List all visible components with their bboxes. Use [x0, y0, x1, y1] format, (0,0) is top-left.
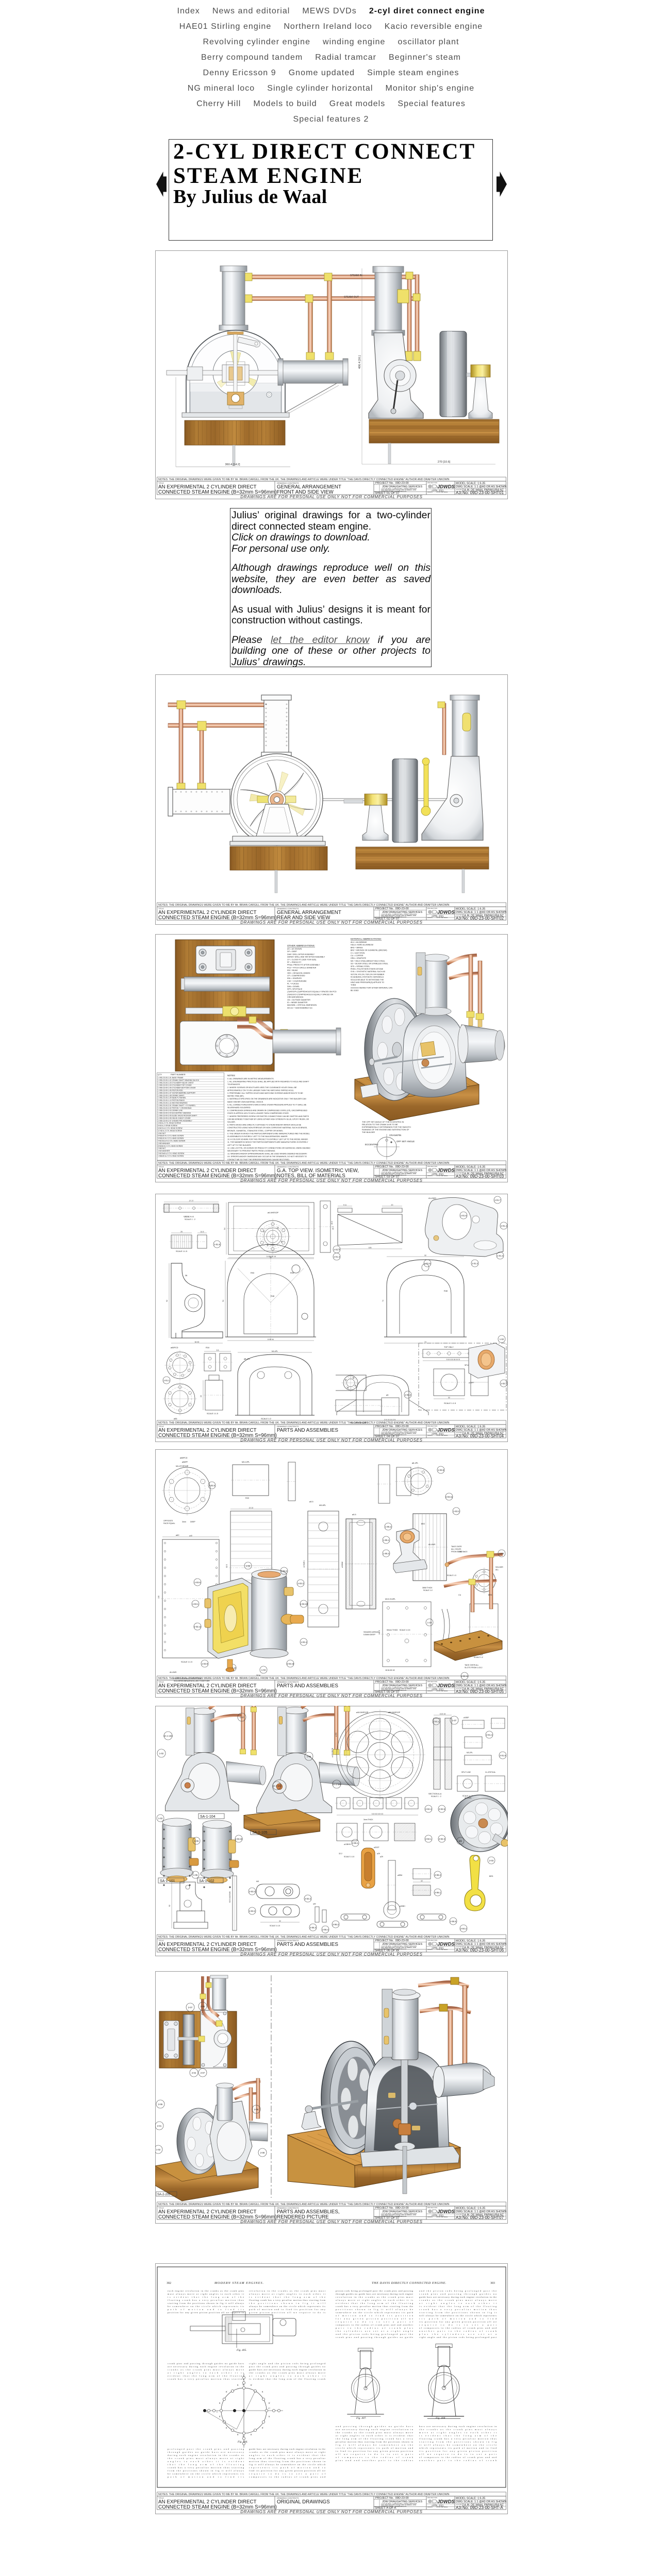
svg-text:⌀40: ⌀40 [189, 1535, 192, 1537]
svg-text:(7)HESOP=(7)APPEDHOLES EQUALLY: (7)HESOP=(7)APPEDHOLES EQUALLY SPACED ON… [287, 991, 337, 993]
svg-text:1-02: 1-02 [246, 1565, 251, 1567]
svg-text:2-03.4: 2-03.4 [249, 1890, 256, 1893]
svg-text:DRAWN: DRAWN [427, 2216, 433, 2218]
svg-text:VETON, NYLON, TEFLON OR RUBBER: VETON, NYLON, TEFLON OR RUBBER [351, 973, 385, 975]
svg-text:BRZ = BRONZE OR GUNMETAL (BRZ/: BRZ = BRONZE OR GUNMETAL (BRZ/GM) [351, 950, 387, 952]
svg-text:DRAWN: DRAWN [427, 1434, 433, 1436]
svg-text:be somewhere on the circle whi: be somewhere on the circle which represe… [168, 2472, 244, 2475]
svg-text:SOULD BE ABLE TO WITHSTAND THE: SOULD BE ABLE TO WITHSTAND THE [351, 979, 384, 981]
svg-text:22 22: 22 22 [249, 1507, 254, 1509]
svg-text:VIEW A-A: VIEW A-A [184, 1215, 194, 1218]
svg-text:1-09: 1-09 [500, 1552, 504, 1555]
svg-text:1-05: 1-05 [193, 1874, 198, 1876]
svg-text:M3-12PL: M3-12PL [242, 1461, 250, 1463]
svg-text:1 09D-23-00-1-06 PISTON ROD: 1 09D-23-00-1-06 PISTON ROD [158, 1090, 183, 1092]
svg-text:R93: R93 [290, 1272, 294, 1274]
svg-text:SA-xxx = SUB ASSEMBLY-xxx: SA-xxx = SUB ASSEMBLY-xxx [287, 1007, 312, 1009]
svg-text:PROJECTION: PROJECTION [427, 1165, 437, 1167]
svg-text:ALU/MS: ALU/MS [428, 1197, 436, 1199]
svg-text:represents its path of motion: represents its path of motion and to [249, 2466, 325, 2469]
svg-text:2-04: 2-04 [192, 2072, 196, 2074]
svg-text:CONSTRUCTED USING NON-FERROUS: CONSTRUCTED USING NON-FERROUS OR NON COR… [227, 1127, 307, 1129]
svg-text:DEEP: DEEP [190, 1521, 195, 1523]
svg-text:ORIGINAL DRAWINGS: ORIGINAL DRAWINGS [277, 2499, 330, 2505]
svg-text:XX. ERRORS AND/OR OMISSIONS MA: XX. ERRORS AND/OR OMISSIONS MAY OCCUR IN… [227, 1156, 307, 1158]
svg-text:2-02.4: 2-02.4 [425, 1808, 432, 1810]
svg-text:SCALE 1:1.5: SCALE 1:1.5 [176, 1250, 187, 1252]
svg-text:360.4 [14.2]: 360.4 [14.2] [225, 463, 240, 466]
svg-text:PART NUMBER: PART NUMBER [171, 1073, 186, 1076]
svg-text:IS ASSEMBLED IS ENTIRELY LEFT: IS ASSEMBLED IS ENTIRELY LEFT TO THE BUI… [227, 1136, 288, 1138]
svg-text:64 60: 64 60 [195, 1341, 200, 1343]
svg-text:1-02: 1-02 [159, 1752, 164, 1755]
svg-text:15 8 15: 15 8 15 [440, 1713, 446, 1715]
svg-text:(7)HESOC=(7)TAPPEDHOLES EQUALL: (7)HESOC=(7)TAPPEDHOLES EQUALLY SPACED O… [287, 993, 334, 995]
svg-text:PROJECTION: PROJECTION [427, 2497, 437, 2499]
svg-text:R16: R16 [206, 1347, 209, 1349]
svg-text:SCALE 1 : 2: SCALE 1 : 2 [185, 1218, 195, 1221]
svg-text:A3: A3 [456, 1689, 461, 1694]
svg-text:ALU/MS: ALU/MS [465, 1797, 472, 1799]
svg-text:M3.5-MAX/MIN: M3.5-MAX/MIN [229, 1891, 231, 1903]
svg-text:SHADED AREAS: SHADED AREAS [363, 1631, 379, 1633]
svg-text:1-02.2: 1-02.2 [501, 1382, 507, 1385]
svg-text:⌀36: ⌀36 [271, 1244, 274, 1246]
svg-text:SS = SILVER STEEL OR STAINLE: SS = SILVER STEEL OR STAINLESS STEEL [351, 963, 388, 965]
svg-text:EXPERIMENTALLY DETERMINED FOR: EXPERIMENTALLY DETERMINED FOR THE SMOOTH [362, 1126, 411, 1128]
svg-text:TOP ONLY: TOP ONLY [444, 1346, 454, 1348]
svg-text:J.A.M. DE WAAL: J.A.M. DE WAAL [436, 1175, 448, 1177]
svg-text:PROJECT No. 09D-23-00: PROJECT No. 09D-23-00 [375, 2497, 409, 2500]
svg-text:THE BUILDER: THE BUILDER [362, 1131, 375, 1133]
svg-text:PROJECTION: PROJECTION [427, 1425, 437, 1427]
svg-text:NECESSARY TO PREVENT PARTS FRO: NECESSARY TO PREVENT PARTS FROM LOOSENIN… [227, 1150, 275, 1152]
svg-text:floating crank has a very pecu: floating crank has a very peculiar motio… [419, 2437, 496, 2440]
svg-text:SCALE 1:2: SCALE 1:2 [261, 1417, 272, 1420]
svg-text:PROJECTION: PROJECTION [427, 907, 437, 909]
svg-text:for any given piston position: for any given piston position all we [336, 2317, 413, 2320]
svg-text:NOTES: THE ORIGINAL DRAWINGS W: NOTES: THE ORIGINAL DRAWINGS WERE GIVEN … [158, 1936, 450, 1939]
svg-text:FACE EQUAL: FACE EQUAL [163, 1522, 175, 1524]
svg-text:4 M2.5x12 A-2 CYL HEAD SCREW: 4 M2.5x12 A-2 CYL HEAD SCREW [158, 1140, 186, 1142]
svg-text:PF = PRESS FIT: PF = PRESS FIT [287, 961, 302, 963]
svg-text:ALL HOLES: ALL HOLES [451, 1548, 461, 1550]
svg-text:⌀18DP: ⌀18DP [464, 1717, 469, 1719]
svg-text:PROJECT No. 09D-23-00: PROJECT No. 09D-23-00 [375, 907, 409, 910]
svg-text:NOTES: THE ORIGINAL DRAWINGS W: NOTES: THE ORIGINAL DRAWINGS WERE GIVEN … [158, 904, 450, 907]
svg-text:floating crank has a very pecu: floating crank has a very peculiar motio… [249, 2299, 326, 2301]
svg-text:1-03.4: 1-03.4 [301, 1641, 307, 1643]
svg-text:all we require to do is to set: all we require to do is to set a pair [336, 2453, 413, 2455]
svg-text:No: 09D-23-00-SHT02: No: 09D-23-00-SHT02 [462, 916, 504, 921]
svg-text:must always move at right angl: must always move at right angles to each… [168, 2293, 244, 2295]
svg-text:SA-2-205: SA-2-205 [157, 2193, 171, 2196]
svg-text:cranks as the crank pins must: cranks as the crank pins must always mov… [168, 2368, 244, 2371]
svg-text:1-02.2: 1-02.2 [405, 1394, 411, 1396]
svg-text:2 09D-23-00-1-10 PISTON RINGS: 2 09D-23-00-1-10 PISTON RINGS [158, 1099, 185, 1101]
svg-text:74: 74 [424, 1341, 426, 1343]
svg-text:of compasses to the radius of: of compasses to the radius of crank pins… [419, 2327, 497, 2329]
svg-text:⌀18-5HESOP: ⌀18-5HESOP [356, 1711, 369, 1714]
svg-text:SEAL: SEAL [256, 1674, 261, 1676]
svg-text:floating crank has a very pecu: floating crank has a very peculiar motio… [168, 2299, 244, 2301]
svg-text:1-01.6: 1-01.6 [460, 1214, 467, 1217]
svg-text:each engine revolution in the: each engine revolution in the cranks as … [168, 2290, 244, 2292]
svg-text:GRA = GRAPHITE: GRA = GRAPHITE [351, 957, 367, 959]
svg-text:1-03.13: 1-03.13 [300, 1603, 308, 1605]
svg-text:peculiar motion thus starting: peculiar motion thus starting from the p… [336, 2441, 413, 2443]
svg-text:A3: A3 [456, 2215, 461, 2220]
svg-text:1-03.5: 1-03.5 [209, 1484, 216, 1487]
svg-text:0. ALL DRAWINGS ARE IN METRIC: 0. ALL DRAWINGS ARE IN METRIC MEASUREMEN… [227, 1078, 274, 1080]
svg-text:MODEL SCALE: 1:6.35: MODEL SCALE: 1:6.35 [456, 1681, 485, 1684]
svg-text:through guides no guide bars a: through guides no guide bars are necessa… [336, 2293, 413, 2295]
svg-text:1-01.4: 1-01.4 [334, 1248, 340, 1251]
svg-text:B´: B´ [251, 2384, 253, 2386]
svg-text:compasses to the radius of cra: compasses to the radius of crank pins an… [336, 2324, 413, 2326]
svg-text:No: 09D-23-00-SHT05: No: 09D-23-00-SHT05 [462, 1689, 504, 1694]
svg-text:32: 32 [279, 1920, 281, 1922]
svg-text:BRS: BRS [488, 1594, 492, 1596]
svg-text:fig it will always be somewher: fig it will always be somewhere on the [336, 2444, 413, 2446]
svg-text:1-06: 1-06 [307, 1755, 311, 1758]
svg-text:105: 105 [369, 1247, 372, 1249]
svg-text:4 M4 NUT: 4 M4 NUT [158, 1132, 165, 1134]
svg-text:8 98 9: 8 98 94 [268, 1338, 274, 1341]
svg-text:J.A.M. DE WAAL: J.A.M. DE WAAL [436, 917, 448, 919]
svg-text:9. THE ORDER IN WHICH THE PART: 9. THE ORDER IN WHICH THE PARTS/COMPONEN… [227, 1132, 310, 1134]
svg-text:MAKE HIS/HER OWN MATERIAL CHOI: MAKE HIS/HER OWN MATERIAL CHOICE. [227, 1101, 263, 1103]
svg-text:PARTS AND ASSEMBLIES: PARTS AND ASSEMBLIES [277, 1428, 338, 1433]
svg-text:⌀48PCD: ⌀48PCD [180, 1457, 188, 1459]
svg-text:the cranks as the crank pins m: the cranks as the crank pins must always… [249, 2371, 325, 2374]
svg-text:J.A.M. DE WAAL: J.A.M. DE WAAL [436, 1690, 448, 1692]
svg-text:1-03.16: 1-03.16 [235, 1838, 243, 1840]
svg-text:ECCENTRIC: ECCENTRIC [365, 1143, 379, 1146]
svg-text:SPS = SPRING STEEL: SPS = SPRING STEEL [351, 965, 370, 968]
svg-text:7. WHERE PREFERRED SCREW OR RI: 7. WHERE PREFERRED SCREW OR RIVETED CONN… [227, 1115, 309, 1117]
svg-text:2-06: 2-06 [201, 2005, 205, 2008]
svg-text:1 09D-23-00-1-07 OUTER BEARIN: 1 09D-23-00-1-07 OUTER BEARING SUPPORT [158, 1092, 195, 1094]
svg-text:Fig. 405.: Fig. 405. [236, 2349, 247, 2352]
svg-text:2-04.2: 2-04.2 [460, 1927, 467, 1930]
svg-text:be somewhere on the circle whi: be somewhere on the circle which represe… [168, 2305, 244, 2308]
svg-text:PEEK= POLYETHER ETHER KETONE: PEEK= POLYETHER ETHER KETONE [351, 968, 384, 970]
svg-text:ALU/MS: ALU/MS [428, 1544, 436, 1546]
svg-text:SOLDERED/BRAZED/GLUED TOGETHER: SOLDERED/BRAZED/GLUED TOGETHER [174, 1680, 210, 1682]
svg-text:NOTES:: NOTES: [227, 1074, 236, 1077]
svg-text:No: 09D-23-00-SHT01: No: 09D-23-00-SHT01 [462, 490, 504, 495]
svg-text:SA-1-103: SA-1-103 [163, 1735, 173, 1737]
svg-text:1-03.15: 1-03.15 [287, 1663, 294, 1665]
svg-text:ID = INSIDE DIAMETER: ID = INSIDE DIAMETER [287, 1002, 308, 1004]
svg-text:R48: R48 [271, 1295, 274, 1297]
svg-text:PARTS AND ASSEMBLIES: PARTS AND ASSEMBLIES [277, 1942, 338, 1947]
svg-text:1-03.1: 1-03.1 [192, 1603, 199, 1605]
svg-text:1 M5x30 A-2 CYL HEAD SCREW: 1 M5x30 A-2 CYL HEAD SCREW [158, 1155, 184, 1157]
svg-text:⌀45PCD: ⌀45PCD [171, 1347, 178, 1349]
svg-text:50mm THICK SCALE 1:3.5: 50mm THICK SCALE 1:3.5 [387, 1629, 410, 1631]
svg-text:SCALE 1:1.5: SCALE 1:1.5 [270, 1925, 280, 1927]
svg-text:CF = CLOSE FIT (SIZE FOR SIZE: CF = CLOSE FIT (SIZE FOR SIZE) [287, 959, 316, 961]
svg-text:36: 36 [185, 1275, 187, 1277]
svg-text:⌀36: ⌀36 [174, 1418, 177, 1420]
svg-text:DRAWINGS ARE FOR PERSONAL USE: DRAWINGS ARE FOR PERSONAL USE ONLY NOT F… [240, 1952, 422, 1956]
svg-text:94: 94 [222, 1300, 224, 1302]
svg-text:1 09D-23-00-2-04 ECCENTRIC SH: 1 09D-23-00-2-04 ECCENTRIC SHEAVES [158, 1112, 191, 1114]
svg-text:1-07: 1-07 [452, 1719, 457, 1722]
svg-text:mm/mmm MEANS THAT EITHER MATER: mm/mmm MEANS THAT EITHER MATERIAL CAN [351, 987, 392, 989]
svg-text:2 M2.5x8 A-2 CYL HEAD SCREW: 2 M2.5x8 A-2 CYL HEAD SCREW [158, 1153, 185, 1155]
svg-text:A3: A3 [456, 490, 461, 495]
svg-text:MS: MS [459, 1840, 462, 1842]
svg-text:long arm of the floating crank: long arm of the floating crank has a ver… [249, 2457, 326, 2460]
svg-text:SILVER/HARD SOLDERED.: SILVER/HARD SOLDERED. [227, 1107, 251, 1109]
svg-text:BRS: BRS [489, 1875, 493, 1877]
svg-text:SA-1-102: SA-1-102 [332, 1783, 341, 1786]
svg-text:MODEL SCALE: 1:6.35: MODEL SCALE: 1:6.35 [456, 1426, 485, 1429]
svg-text:2-05.1: 2-05.1 [352, 1842, 359, 1844]
svg-text:NOTES: THE ORIGINAL DRAWINGS W: NOTES: THE ORIGINAL DRAWINGS WERE GIVEN … [158, 1162, 450, 1165]
svg-text:R48: R48 [444, 1290, 448, 1292]
svg-text:TUBE 8x6.5: TUBE 8x6.5 [457, 1551, 467, 1553]
svg-text:SA-1-101: SA-1-101 [160, 1879, 175, 1883]
svg-text:CI = CAST IRON: CI = CAST IRON [351, 952, 365, 954]
svg-text:RELATION TO THE CRANK AXIS TO: RELATION TO THE CRANK AXIS TO BE [362, 1124, 398, 1126]
svg-text:B´: B´ [262, 2427, 264, 2429]
svg-text:46.3: 46.3 [332, 1226, 334, 1230]
svg-text:32: 32 [270, 1257, 272, 1259]
svg-text:2-03.2: 2-03.2 [249, 1910, 256, 1912]
svg-text:92: 92 [169, 1905, 171, 1907]
svg-text:the cranks as the crank pins m: the cranks as the crank pins must always… [336, 2431, 413, 2434]
svg-text:SPLIT LINE: SPLIT LINE [461, 1771, 471, 1773]
svg-text:106: 106 [158, 1596, 160, 1599]
svg-text:PCD = PITCH CIRCLE DIAMETER: PCD = PITCH CIRCLE DIAMETER [287, 967, 317, 969]
svg-text:1-02: 1-02 [500, 1338, 504, 1341]
svg-text:1 09D-23-00-2-05 SLIDE VALVE: 1 09D-23-00-2-05 SLIDE VALVE ROCKER SHAF… [158, 1115, 197, 1117]
svg-text:PROJECT No. 09D-23-00: PROJECT No. 09D-23-00 [375, 2207, 409, 2210]
svg-text:BRONZE, GUNMETAL, STAINLESS ST: BRONZE, GUNMETAL, STAINLESS STEEL, COPPE… [227, 1130, 284, 1132]
svg-text:PROJECTION: PROJECTION [427, 2207, 437, 2209]
svg-text:BRZ: BRZ [421, 1523, 425, 1525]
svg-text:CIRCUMFERENCE: CIRCUMFERENCE [287, 996, 304, 998]
svg-text:CU: CU [458, 1594, 461, 1596]
svg-text:11. THE MANNER IN WHICH THE PA: 11. THE MANNER IN WHICH THE PARTS/COMPON… [227, 1141, 308, 1143]
svg-text:5. ALL CONNECTIONS/JOINTS WHIC: 5. ALL CONNECTIONS/JOINTS WHICH HAVE STE… [227, 1104, 307, 1106]
svg-text:32: 32 [424, 1255, 426, 1257]
svg-text:20: 20 [391, 1204, 393, 1206]
svg-text:No: 09D-23-00-SHT-A: No: 09D-23-00-SHT-A [462, 2505, 503, 2510]
svg-text:B´: B´ [237, 2434, 239, 2436]
svg-text:DRAWINGS ARE FOR PERSONAL USE: DRAWINGS ARE FOR PERSONAL USE ONLY NOT F… [240, 495, 422, 499]
svg-text:2-06.3: 2-06.3 [310, 1926, 317, 1929]
svg-text:2L-CRITICAL: 2L-CRITICAL [485, 1771, 495, 1773]
svg-text:92: 92 [166, 1300, 168, 1302]
svg-text:PFAA= PRESS FIT AFTER ASSEMBLY: PFAA= PRESS FIT AFTER ASSEMBLY [287, 964, 320, 966]
svg-text:B´: B´ [269, 2402, 271, 2404]
svg-text:2-02.2: 2-02.2 [305, 1897, 311, 1900]
svg-text:M4-4THESOP: M4-4THESOP [176, 1465, 189, 1467]
svg-text:RUNNING OF THE ENGINE AND SATI: RUNNING OF THE ENGINE AND SATISFACTION O… [362, 1129, 409, 1131]
svg-text:302: 302 [167, 2282, 171, 2285]
svg-text:8. PARTS WHICH ARE DIRECTLY EX: 8. PARTS WHICH ARE DIRECTLY EXPOSED TO S… [227, 1124, 302, 1126]
svg-text:and the piston rods being prol: and the piston rods being prolonged past… [419, 2290, 496, 2292]
svg-text:1-03.14: 1-03.14 [461, 1675, 469, 1677]
svg-text:SCALE 1:1.5: SCALE 1:1.5 [444, 1402, 456, 1404]
svg-text:THE OFF SET ANGLE OF THE ECCEN: THE OFF SET ANGLE OF THE ECCENTRIC IN [362, 1121, 404, 1123]
svg-text:CAN BE BONDED TOGETHER BY USIN: CAN BE BONDED TOGETHER BY USING EITHER H… [227, 1118, 309, 1120]
svg-text:⌀150: ⌀150 [335, 1733, 337, 1737]
svg-text:A3: A3 [456, 1434, 461, 1438]
svg-text:5 6 6 16 16 6 6 5: 5 6 6 16 16 6 6 5 [446, 1359, 460, 1361]
svg-text:1-05.1: 1-05.1 [383, 1539, 390, 1541]
svg-text:1 09D-23-00-1-04 CYLINDER TOP: 1 09D-23-00-1-04 CYLINDER TOP COVER [158, 1084, 192, 1087]
svg-text:DRAWINGS ARE FOR PERSONAL USE: DRAWINGS ARE FOR PERSONAL USE ONLY NOT F… [240, 2510, 422, 2514]
svg-text:2-06.5: 2-06.5 [450, 1920, 457, 1923]
svg-text:revolution in the cranks as th: revolution in the cranks as the crank pi… [249, 2290, 326, 2292]
svg-text:DRAWN: DRAWN [427, 491, 433, 493]
svg-text:⌀32MM: ⌀32MM [341, 1562, 343, 1568]
svg-text:1-01.1: 1-01.1 [163, 1379, 170, 1382]
svg-text:12 M2 A-2 CYL HEAD SCREW: 12 M2 A-2 CYL HEAD SCREW [158, 1130, 183, 1132]
svg-text:move at right angles to each o: move at right angles to each other it [419, 2431, 497, 2434]
svg-text:SA-1-102: SA-1-102 [199, 1879, 214, 1883]
svg-text:SA-1-105: SA-1-105 [252, 1831, 268, 1835]
svg-text:25: 25 [180, 1231, 183, 1233]
svg-text:1 09D-23-00-1-03 CYLINDER+VAL: 1 09D-23-00-1-03 CYLINDER+VALVE CHEST [158, 1082, 194, 1084]
svg-text:5.5MM DEEP: 5.5MM DEEP [363, 1634, 375, 1636]
svg-text:PL = PLACES: PL = PLACES [287, 983, 299, 985]
svg-text:2-08: 2-08 [260, 2151, 265, 2154]
svg-text:MS: MS [256, 1880, 259, 1883]
svg-text:angles to each other it is evi: angles to each other it is evident that … [249, 2454, 325, 2456]
svg-text:8 M3x20 A-2 CYL HEAD SCREW: 8 M3x20 A-2 CYL HEAD SCREW [158, 1135, 184, 1137]
svg-text:4 M3 WASHER: 4 M3 WASHER [158, 1150, 170, 1152]
svg-text:BE USED: BE USED [351, 990, 359, 992]
svg-text:⌀3: ⌀3 [386, 1394, 388, 1396]
svg-text:the crank pins must always mov: the crank pins must always move at right [168, 2457, 244, 2460]
svg-text:ALU/MS: ALU/MS [170, 1671, 177, 1673]
svg-text:3MM THICK: 3MM THICK [422, 1587, 433, 1589]
svg-text:PROJECT No. 09D-23-00: PROJECT No. 09D-23-00 [375, 1939, 409, 1942]
svg-text:⌀3.5: ⌀3.5 [309, 1501, 313, 1503]
svg-text:1-01.7: 1-01.7 [494, 1199, 501, 1201]
svg-text:2-05: 2-05 [254, 2108, 259, 2111]
svg-text:MS = MILD STEEL/BRIGHT MILD S: MS = MILD STEEL/BRIGHT MILD STEEL [351, 960, 385, 962]
svg-text:find its position for any give: find its position for any given piston p… [249, 2469, 325, 2472]
svg-text:J.A.M. DE WAAL: J.A.M. DE WAAL [436, 1434, 448, 1436]
svg-text:1-03.6: 1-03.6 [194, 1581, 201, 1584]
svg-text:⌀4-6HESOP: ⌀4-6HESOP [268, 1212, 279, 1214]
svg-text:HEX = HEXAGON, 6SIDED: HEX = HEXAGON, 6SIDED [287, 972, 310, 974]
svg-text:TAKE OVER: TAKE OVER [451, 1546, 462, 1548]
svg-text:STEAM OUT: STEAM OUT [344, 296, 359, 299]
svg-text:2-01.4: 2-01.4 [486, 1734, 493, 1736]
svg-text:8 M2x8 A-2 CYL HEAD SCREW: 8 M2x8 A-2 CYL HEAD SCREW [158, 1145, 183, 1147]
svg-text:NOTES: THE ORIGINAL DRAWINGS W: NOTES: THE ORIGINAL DRAWINGS WERE GIVEN … [158, 2203, 450, 2206]
svg-text:1 09D-23-00-1-01 BASE FRAME: 1 09D-23-00-1-01 BASE FRAME [158, 1077, 184, 1079]
svg-text:cranks as the crank pins must: cranks as the crank pins must always mov… [419, 2299, 496, 2301]
svg-text:9 11: 9 11 [343, 1204, 347, 1206]
svg-text:RM = REAM: RM = REAM [287, 970, 297, 972]
svg-text:⌀52-5HESOP: ⌀52-5HESOP [388, 1711, 401, 1714]
svg-text:CSK = COUNTERSINK: CSK = COUNTERSINK [287, 980, 307, 982]
svg-text:2-02.3: 2-02.3 [439, 1838, 445, 1840]
svg-text:1 09D-23-00-1-11 BIG END BEAR: 1 09D-23-00-1-11 BIG END BEARING [158, 1102, 188, 1104]
svg-text:QTY: QTY [158, 1073, 162, 1076]
svg-text:4. MATERIALS SPECIFIED ON THE: 4. MATERIALS SPECIFIED ON THE DRAWINGS A… [227, 1098, 306, 1100]
svg-text:2 09D-23-00-2-07 STEAM PIPE A: 2 09D-23-00-2-07 STEAM PIPE ASSEMBLY [158, 1120, 193, 1122]
svg-text:168.5: 168.5 [378, 1630, 380, 1635]
svg-text:JDWDS: JDWDS [437, 909, 455, 915]
svg-text:2-01: 2-01 [157, 2125, 162, 2127]
svg-text:5 5: 5 5 [217, 1349, 219, 1351]
svg-text:SLOTS FROM 1-03.2: SLOTS FROM 1-03.2 [465, 1667, 483, 1669]
svg-text:1 09D-23-00-2-03 CRANK LINK: 1 09D-23-00-2-03 CRANK LINK [158, 1110, 183, 1112]
svg-text:⌀5RM: ⌀5RM [398, 1874, 402, 1876]
svg-text:2-03: 2-03 [489, 1859, 494, 1862]
svg-text:STEAM IN: STEAM IN [350, 274, 362, 277]
svg-text:motion thus starting from the: motion thus starting from the positions … [249, 2460, 326, 2463]
svg-text:303: 303 [490, 2282, 495, 2285]
svg-text:revolution in the cranks as th: revolution in the cranks as the crank pi… [336, 2296, 413, 2298]
svg-text:32.2: 32.2 [339, 1853, 342, 1855]
svg-text:DRAWINGS ARE FOR PERSONAL USE: DRAWINGS ARE FOR PERSONAL USE ONLY NOT F… [240, 1693, 422, 1698]
svg-text:guide bars are necessary durin: guide bars are necessary during each eng… [419, 2296, 496, 2298]
svg-text:J.A.M. DE WAAL: J.A.M. DE WAAL [436, 2216, 448, 2218]
svg-text:MATERIAL ABBREVIATIONS:: MATERIAL ABBREVIATIONS: [351, 938, 382, 940]
svg-text:⌀36PF: ⌀36PF [182, 1461, 188, 1463]
svg-text:1-10: 1-10 [427, 1621, 432, 1624]
svg-text:and the piston rods being prol: and the piston rods being prolonged past… [336, 2333, 413, 2335]
svg-text:⌀23PF: ⌀23PF [469, 1382, 474, 1384]
svg-text:PROJECTION: PROJECTION [427, 482, 437, 484]
svg-text:JDWDS: JDWDS [437, 1941, 455, 1947]
svg-text:CRANKPIN: CRANKPIN [389, 1134, 401, 1137]
svg-text:1 09D-23-00-1-08 CRANK SHAFT: 1 09D-23-00-1-08 CRANK SHAFT [158, 1094, 185, 1096]
svg-text:1-05: 1-05 [194, 1840, 199, 1842]
svg-text:MODERN STEAM ENGINES.: MODERN STEAM ENGINES. [214, 2281, 264, 2285]
svg-text:DRAWINGS ARE FOR PERSONAL USE: DRAWINGS ARE FOR PERSONAL USE ONLY NOT F… [240, 1438, 422, 1442]
svg-text:NOTES: THE ORIGINAL DRAWINGS W: NOTES: THE ORIGINAL DRAWINGS WERE GIVEN … [158, 1421, 450, 1425]
svg-text:A3: A3 [456, 1948, 461, 1953]
svg-text:J.A.M. DE WAAL: J.A.M. DE WAAL [436, 2506, 448, 2508]
svg-text:OTHER ABBREVIATIONS:: OTHER ABBREVIATIONS: [287, 944, 315, 947]
svg-text:PARTS AND ASSEMBLIES: PARTS AND ASSEMBLIES [277, 1683, 338, 1689]
svg-text:1-05.3: 1-05.3 [383, 1552, 390, 1555]
svg-text:32: 32 [421, 1880, 423, 1882]
svg-text:⌀40: ⌀40 [176, 1534, 179, 1536]
svg-text:1-05.2: 1-05.2 [385, 1526, 392, 1528]
svg-text:2-01.8: 2-01.8 [500, 1754, 506, 1757]
svg-text:MODEL SCALE: 1:6.35: MODEL SCALE: 1:6.35 [456, 1166, 485, 1169]
svg-text:1-01.6: 1-01.6 [214, 1243, 221, 1246]
svg-text:somewhere on the circle which: somewhere on the circle which represents… [336, 2311, 413, 2314]
svg-text:SA-1-104: SA-1-104 [200, 1815, 216, 1819]
svg-text:bars are necessary during each: bars are necessary during each engine re… [419, 2425, 497, 2428]
svg-text:crank pins and passing through: crank pins and passing through guides no… [336, 2336, 413, 2338]
svg-text:14.5: 14.5 [201, 1231, 204, 1233]
svg-text:2-06.2: 2-06.2 [435, 1874, 441, 1876]
svg-text:DRAWN: DRAWN [427, 917, 433, 919]
svg-text:2 M5 WASHER: 2 M5 WASHER [158, 1142, 170, 1144]
svg-text:74: 74 [382, 1300, 384, 1302]
svg-text:IN GENERAL SYNTHETIC MATERIALS: IN GENERAL SYNTHETIC MATERIALS [351, 976, 384, 978]
svg-text:B´: B´ [226, 2391, 228, 2393]
svg-text:1-03.2: 1-03.2 [453, 1510, 460, 1513]
svg-text:HEAT AND PRESSURE(S) APPLIED T: HEAT AND PRESSURE(S) APPLIED TO [351, 981, 384, 984]
